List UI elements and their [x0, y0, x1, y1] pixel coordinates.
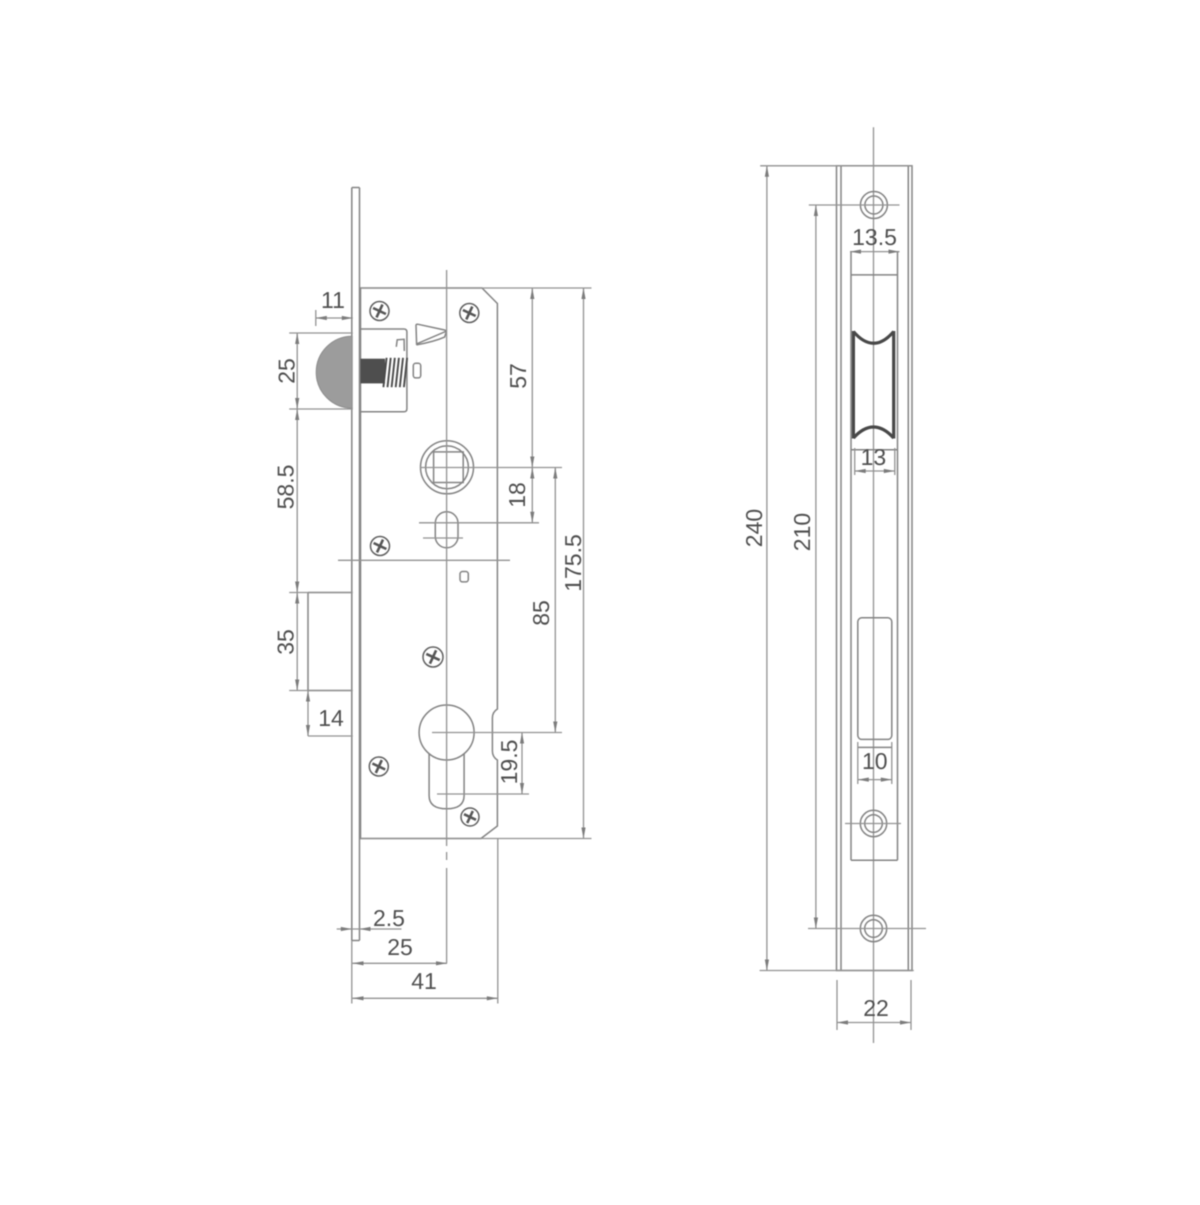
svg-text:13.5: 13.5	[852, 224, 897, 250]
svg-text:175.5: 175.5	[560, 534, 586, 592]
svg-text:13: 13	[861, 444, 887, 470]
svg-text:18: 18	[504, 482, 530, 508]
svg-text:41: 41	[411, 968, 437, 994]
svg-text:14: 14	[318, 705, 344, 731]
svg-text:22: 22	[863, 995, 889, 1021]
svg-text:58.5: 58.5	[273, 465, 299, 510]
svg-text:11: 11	[321, 287, 345, 313]
svg-text:35: 35	[273, 629, 299, 655]
svg-text:57: 57	[505, 363, 531, 389]
svg-text:2.5: 2.5	[373, 905, 405, 931]
svg-text:240: 240	[741, 509, 767, 547]
svg-text:19.5: 19.5	[496, 740, 522, 785]
svg-text:25: 25	[387, 934, 413, 960]
svg-text:10: 10	[862, 748, 888, 774]
svg-text:85: 85	[528, 600, 554, 626]
svg-text:25: 25	[274, 358, 300, 384]
svg-text:210: 210	[789, 513, 815, 551]
